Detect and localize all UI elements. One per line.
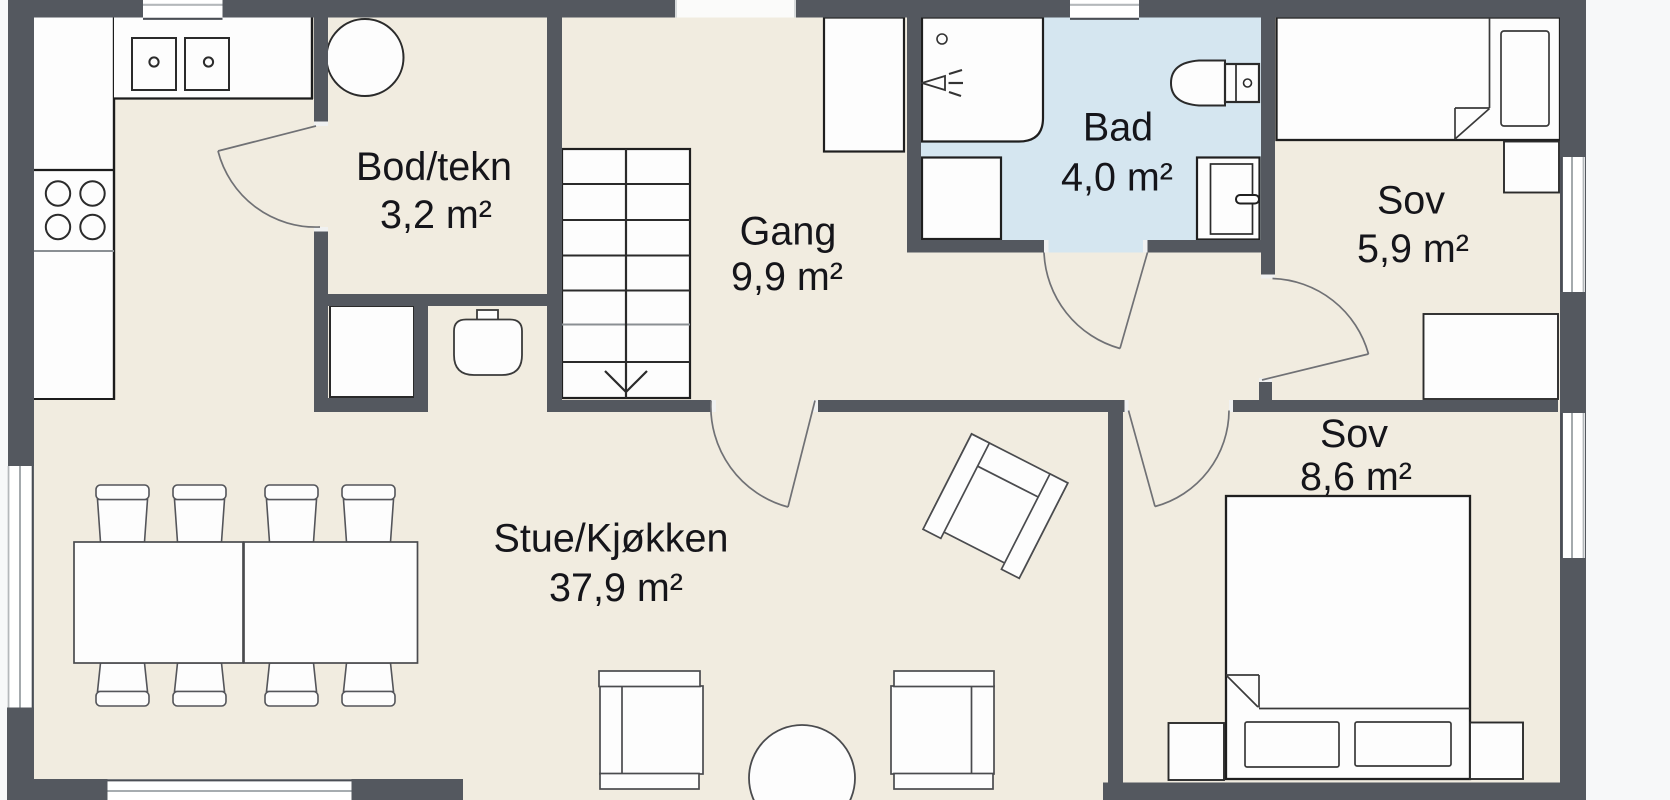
svg-text:5,9 m²: 5,9 m² xyxy=(1357,227,1469,271)
svg-text:Stue/Kjøkken: Stue/Kjøkken xyxy=(494,517,729,561)
svg-text:Sov: Sov xyxy=(1377,179,1445,223)
svg-text:3,2 m²: 3,2 m² xyxy=(380,193,492,237)
svg-text:37,9 m²: 37,9 m² xyxy=(549,566,683,610)
svg-text:Bad: Bad xyxy=(1083,106,1153,150)
svg-text:9,9 m²: 9,9 m² xyxy=(731,255,843,299)
svg-text:8,6 m²: 8,6 m² xyxy=(1300,455,1412,499)
svg-text:Bod/tekn: Bod/tekn xyxy=(356,145,512,189)
svg-text:4,0 m²: 4,0 m² xyxy=(1061,156,1173,200)
svg-text:Sov: Sov xyxy=(1320,412,1388,456)
svg-text:Gang: Gang xyxy=(740,210,837,254)
